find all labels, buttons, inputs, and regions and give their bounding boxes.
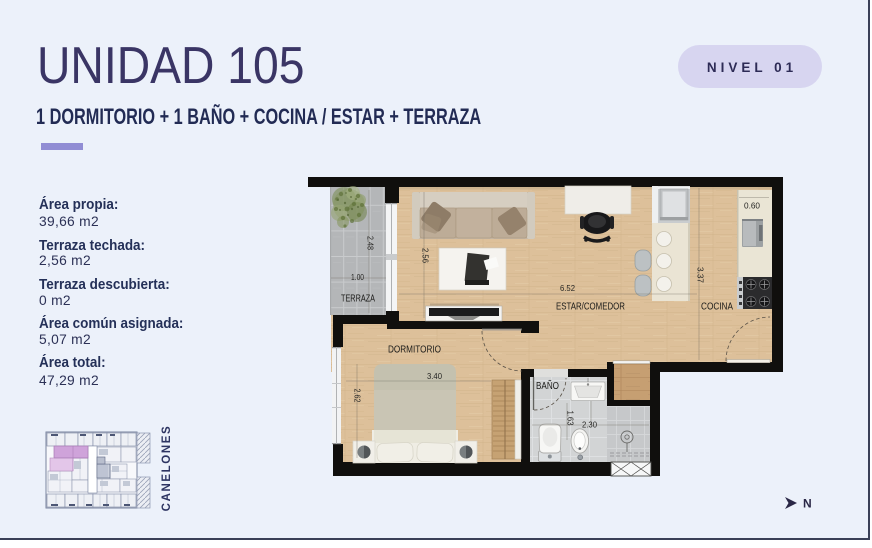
svg-text:1.00: 1.00 bbox=[351, 273, 364, 282]
svg-text:N: N bbox=[803, 497, 812, 511]
svg-text:3.40: 3.40 bbox=[427, 372, 443, 381]
svg-text:0.60: 0.60 bbox=[744, 202, 761, 211]
svg-text:2.48: 2.48 bbox=[366, 236, 375, 250]
svg-text:1.63: 1.63 bbox=[566, 411, 575, 427]
svg-text:3.37: 3.37 bbox=[696, 267, 705, 284]
svg-text:2.62: 2.62 bbox=[353, 389, 362, 403]
svg-text:ESTAR/COMEDOR: ESTAR/COMEDOR bbox=[556, 302, 625, 313]
svg-text:COCINA: COCINA bbox=[701, 302, 733, 313]
svg-text:TERRAZA: TERRAZA bbox=[341, 294, 375, 305]
svg-text:2.30: 2.30 bbox=[582, 421, 598, 430]
svg-text:6.52: 6.52 bbox=[560, 284, 576, 293]
svg-text:2.56: 2.56 bbox=[421, 248, 430, 264]
svg-text:BAÑO: BAÑO bbox=[536, 379, 559, 392]
svg-text:DORMITORIO: DORMITORIO bbox=[388, 345, 441, 356]
